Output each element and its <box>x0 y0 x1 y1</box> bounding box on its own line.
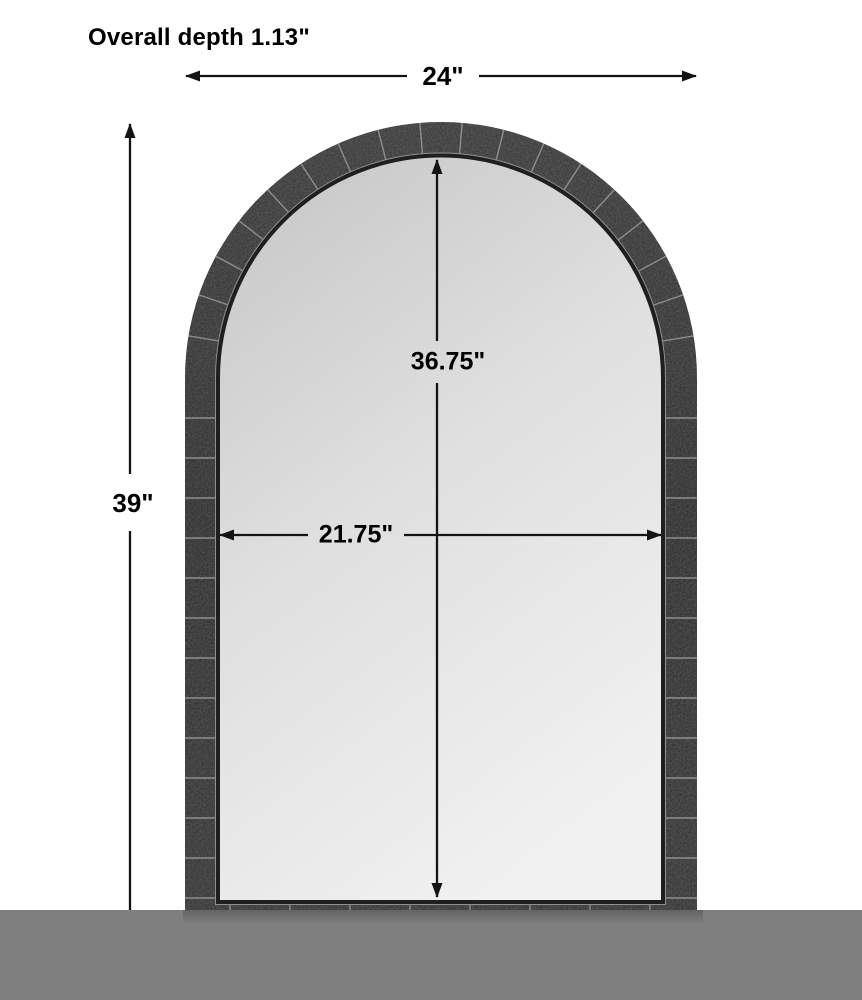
glass-height-label: 36.75" <box>411 350 485 375</box>
overall-width-label: 24" <box>422 63 463 89</box>
mirror-glass <box>218 156 663 903</box>
overall-depth-label: Overall depth 1.13" <box>88 26 310 50</box>
glass-width-label: 21.75" <box>319 523 393 548</box>
overall-height-label: 39" <box>112 490 153 516</box>
product-dimension-diagram: Overall depth 1.13" 24" 39" 36.75" 21.75… <box>0 0 862 1000</box>
mirror-floor-shadow <box>183 910 703 924</box>
